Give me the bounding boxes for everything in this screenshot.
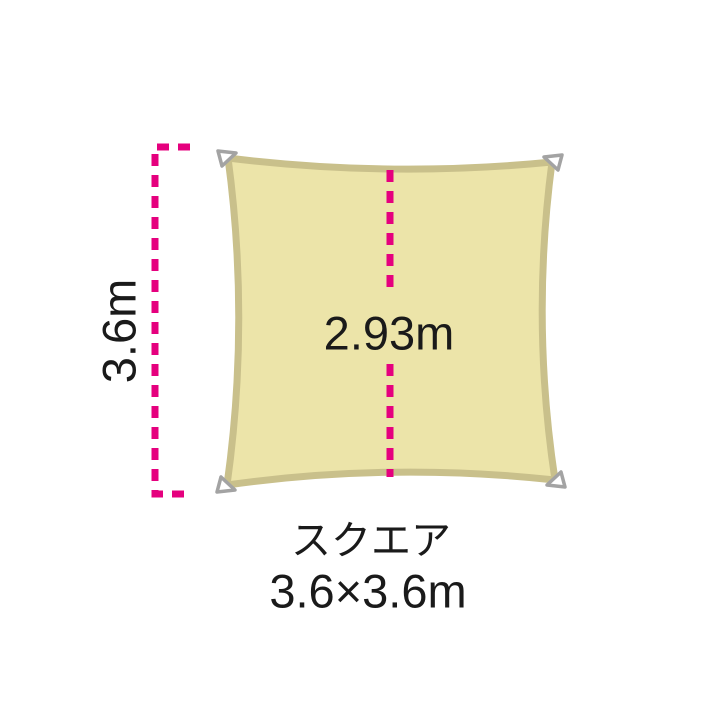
shape-size-label: 3.6×3.6m (269, 568, 466, 615)
side-length-label: 3.6m (96, 279, 143, 384)
shade-sail-dimension-diagram: 3.6m 2.93m スクエア 3.6×3.6m (0, 0, 720, 720)
shape-name-label: スクエア (291, 521, 451, 561)
side-dimension-line (155, 147, 190, 494)
inner-span-label: 2.93m (324, 310, 455, 357)
